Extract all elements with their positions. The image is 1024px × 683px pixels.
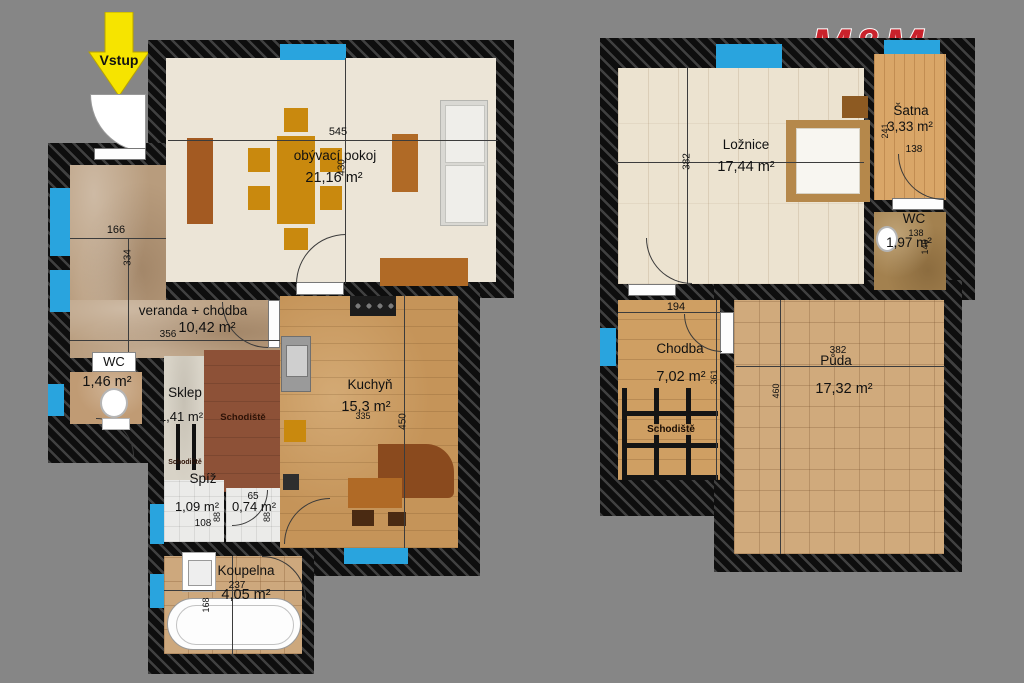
dim-line bbox=[687, 68, 688, 284]
chair bbox=[284, 108, 308, 132]
dim-label: 194 bbox=[658, 301, 694, 313]
window bbox=[50, 270, 70, 312]
chair bbox=[248, 186, 270, 210]
dim-label: 545 bbox=[318, 126, 358, 138]
window bbox=[50, 188, 70, 256]
dim-label: 241 bbox=[880, 122, 890, 140]
door-leaf bbox=[892, 198, 944, 210]
window bbox=[48, 384, 64, 416]
bed-mattress bbox=[796, 128, 860, 194]
room-floor-puda bbox=[734, 300, 944, 554]
window bbox=[280, 44, 346, 60]
sofa-cushion bbox=[445, 105, 485, 163]
sink-basin bbox=[286, 345, 308, 377]
window bbox=[150, 574, 164, 608]
room-area-wc1: 1,46 m² bbox=[72, 375, 142, 391]
room-area-koupelna: 4,05 m² bbox=[198, 588, 294, 604]
door-leaf bbox=[94, 148, 146, 160]
window bbox=[150, 504, 164, 544]
bathtub-inner bbox=[176, 605, 294, 645]
room-area-komora: 0,74 m² bbox=[224, 500, 284, 514]
kettle bbox=[283, 474, 299, 490]
window bbox=[884, 40, 940, 54]
kitchen-box bbox=[284, 420, 306, 442]
sideboard bbox=[380, 258, 468, 286]
kitchen-sink bbox=[281, 336, 311, 392]
sofa bbox=[440, 100, 488, 226]
kitchen-chair bbox=[352, 510, 374, 526]
room-area-sklep: 1,41 m² bbox=[152, 410, 210, 424]
room-area-living: 21,16 m² bbox=[274, 171, 394, 187]
sofa-cushion bbox=[445, 165, 485, 223]
stairs-label-upper: Schodiště bbox=[640, 424, 702, 435]
dim-label: 168 bbox=[201, 595, 211, 615]
dim-label: 335 bbox=[348, 411, 378, 421]
dim-label: 138 bbox=[896, 144, 932, 155]
stove bbox=[350, 296, 396, 316]
room-area-puda: 17,32 m² bbox=[796, 382, 892, 398]
room-area-wc2: 1,97 m² bbox=[874, 236, 944, 251]
dim-label: 430 bbox=[337, 156, 348, 180]
room-label-koupelna: Koupelna bbox=[200, 564, 292, 579]
dim-line bbox=[168, 140, 498, 141]
cabinet bbox=[187, 138, 213, 224]
nightstand bbox=[842, 96, 868, 118]
dim-label: 88 bbox=[212, 508, 222, 526]
chair bbox=[248, 148, 270, 172]
room-label-satna: Šatna bbox=[884, 104, 938, 119]
floorplan-canvas: Vstup M&M REALITY bbox=[0, 0, 1024, 683]
dim-line bbox=[70, 340, 280, 341]
stairs-label-ground: Schodiště bbox=[212, 412, 274, 423]
window bbox=[716, 44, 782, 68]
dim-label: 334 bbox=[123, 246, 134, 270]
stairs-note: Schodiště bbox=[164, 459, 206, 466]
dim-label: 382 bbox=[682, 151, 693, 173]
dim-label: 450 bbox=[398, 411, 409, 433]
dim-line bbox=[70, 238, 166, 239]
dim-label: 166 bbox=[96, 224, 136, 236]
room-label-sklep: Sklep bbox=[162, 386, 208, 401]
window bbox=[600, 328, 616, 366]
dim-line bbox=[780, 300, 781, 554]
kitchen-table bbox=[348, 478, 402, 508]
entrance-arrow: Vstup bbox=[88, 12, 150, 100]
bathtub bbox=[167, 598, 301, 650]
room-area-loznice: 17,44 m² bbox=[694, 160, 798, 176]
window bbox=[344, 548, 408, 564]
dim-line bbox=[716, 300, 717, 480]
room-label-puda: Půda bbox=[806, 354, 866, 369]
entrance-label: Vstup bbox=[100, 52, 139, 68]
chair bbox=[320, 186, 342, 210]
dim-label: 460 bbox=[771, 381, 781, 401]
chair bbox=[284, 228, 308, 250]
room-label-wc1: WC bbox=[92, 352, 136, 372]
room-label-living: obývací pokoj bbox=[270, 149, 400, 164]
toilet bbox=[100, 388, 128, 418]
room-label-spiz: Spíž bbox=[180, 472, 226, 487]
door-leaf bbox=[720, 312, 734, 354]
room-label-kitchen: Kuchyň bbox=[326, 378, 414, 393]
dim-label: 356 bbox=[148, 329, 188, 340]
room-label-loznice: Ložnice bbox=[696, 138, 796, 153]
door-leaf bbox=[628, 284, 676, 296]
room-label-veranda: veranda + chodba bbox=[108, 304, 278, 319]
toilet-tank bbox=[102, 418, 130, 430]
dim-label: 65 bbox=[240, 491, 266, 502]
dim-label: 88 bbox=[262, 508, 272, 526]
dim-label: 146 bbox=[920, 238, 930, 256]
dim-label: 361 bbox=[709, 367, 719, 387]
room-label-wc2: WC bbox=[894, 212, 934, 227]
room-label-chodba: Chodba bbox=[640, 342, 720, 357]
